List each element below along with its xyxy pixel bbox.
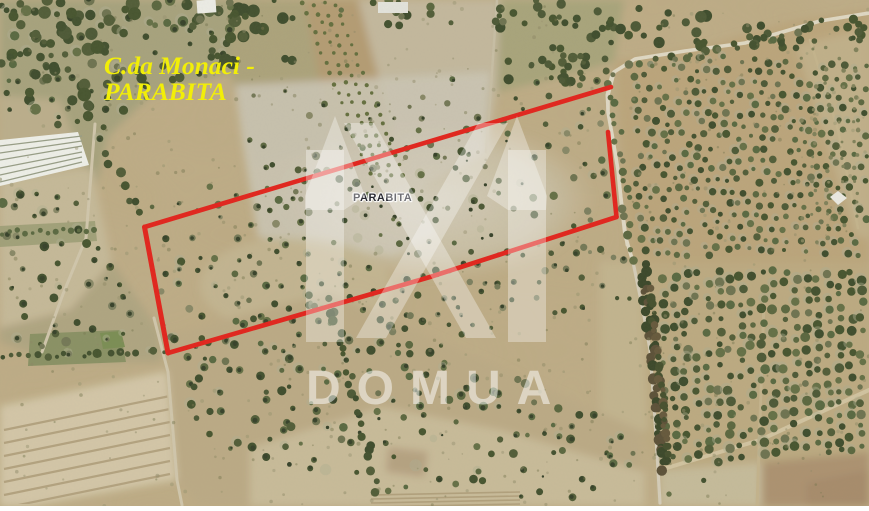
svg-text:DOMUA: DOMUA [306,362,567,415]
